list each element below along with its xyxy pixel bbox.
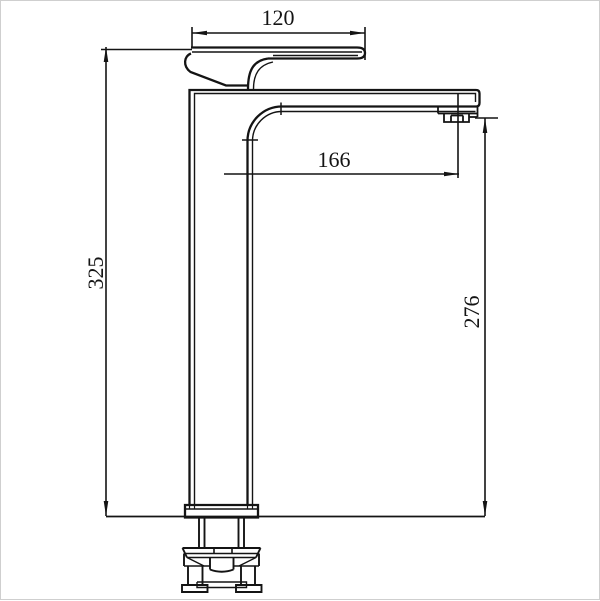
dimension-label-outlet-height: 276: [459, 296, 484, 329]
arrowhead: [104, 501, 109, 516]
nut-diagonal: [239, 558, 256, 567]
nut-foot: [236, 585, 262, 592]
arrowhead: [192, 31, 207, 36]
dimension-label-spout-reach: 166: [318, 147, 351, 172]
nut-u-notch: [210, 558, 234, 572]
arrowhead: [350, 31, 365, 36]
dimension-label-overall-height: 325: [83, 257, 108, 290]
handle-bar-outline: [191, 48, 365, 59]
dimension-overall-height: 325: [83, 47, 192, 516]
dimension-outlet-height: 276: [459, 118, 498, 516]
nut-diagonal: [187, 558, 204, 567]
nut-foot: [182, 585, 208, 592]
arrowhead: [483, 501, 488, 516]
drawing-canvas: 120 325 166 276: [0, 0, 600, 600]
body-inner-underside: [253, 112, 476, 506]
mounting-nut: [182, 548, 262, 592]
handle-base-outline: [185, 54, 248, 86]
threaded-shank: [199, 518, 244, 548]
aerator-inner-detail: [451, 116, 463, 123]
arrowhead: [444, 172, 459, 177]
faucet-handle-lever: [185, 48, 365, 90]
handle-neck-inner: [254, 62, 274, 89]
faucet-dimension-drawing: 120 325 166 276: [1, 1, 600, 601]
arrowhead: [483, 118, 488, 133]
dimension-label-handle-width: 120: [262, 5, 295, 30]
handle-neck-outer: [248, 59, 268, 90]
